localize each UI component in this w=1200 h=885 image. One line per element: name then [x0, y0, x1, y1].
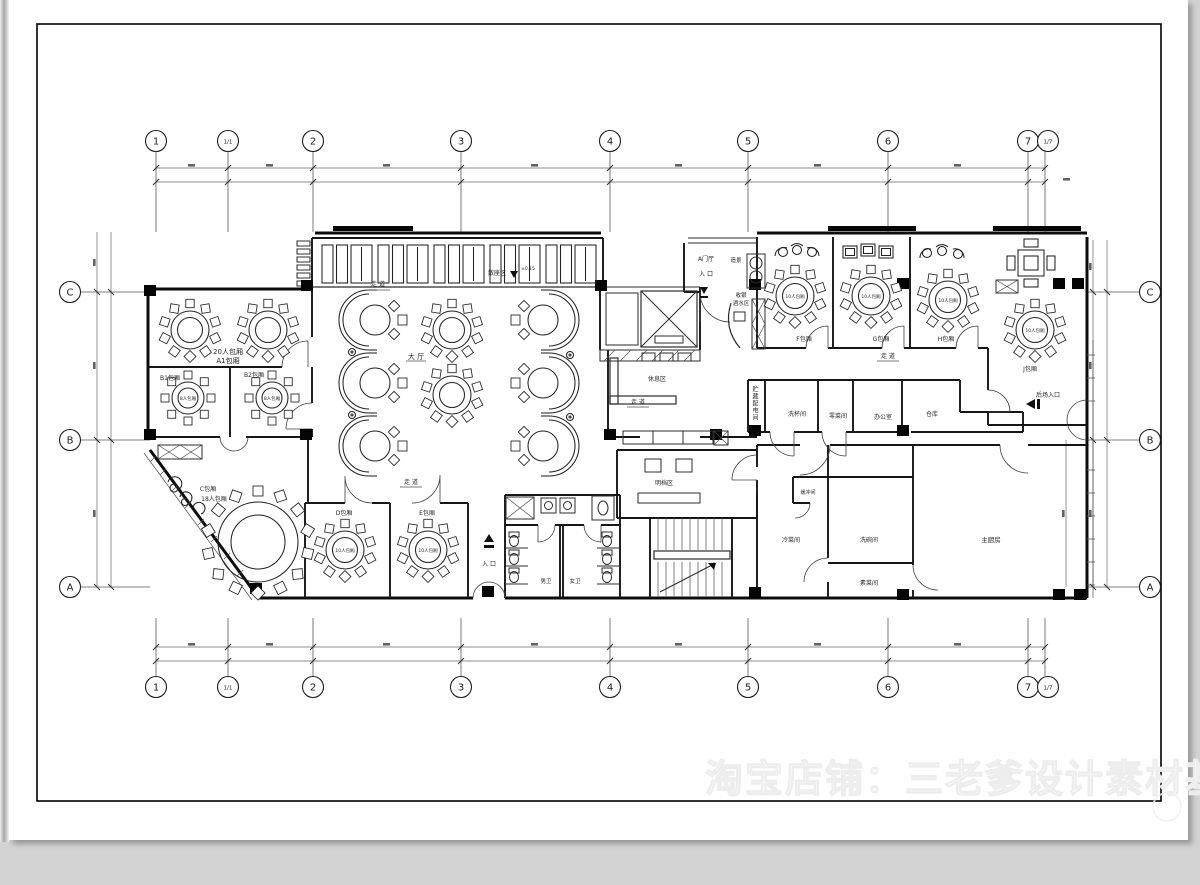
- axis-bubble-3-bottom: 3: [451, 677, 472, 698]
- svg-text:5: 5: [745, 683, 751, 694]
- rear-entry-bar-icon: [1037, 399, 1040, 409]
- axis-bubble-7-bottom: 7: [1018, 677, 1039, 698]
- office-label: 办公室: [874, 413, 892, 421]
- level-marker-icon: [510, 271, 518, 278]
- room-f-label: F包厢: [796, 335, 811, 343]
- tables: [159, 245, 1066, 600]
- svg-text:A: A: [67, 583, 74, 594]
- seating-area-label: 散座区: [488, 269, 506, 277]
- level-value: ±0.15: [521, 266, 535, 272]
- table-h-caption: 10人包厢: [938, 297, 958, 304]
- female-wc-label: 女卫: [569, 577, 581, 585]
- room-h-label: H包厢: [938, 335, 955, 343]
- axis-bubble-5-bottom: 5: [738, 677, 759, 698]
- axis-bubble-7-top: 7: [1018, 131, 1039, 152]
- hall-label: 大 厅: [408, 352, 424, 361]
- svg-text:B: B: [67, 436, 74, 447]
- room-b2-label: B2包厢: [244, 371, 264, 379]
- axis-bubble-1-7-bottom: 1/7: [1038, 677, 1059, 698]
- axis-bubble-6-bottom: 6: [878, 677, 899, 698]
- axis-bubble-4-top: 4: [600, 131, 621, 152]
- warehouse-label: 仓库: [926, 410, 938, 418]
- curved-booth-6: [511, 416, 579, 476]
- storage-power-room-label: 贮藏配电间: [751, 386, 757, 421]
- svg-text:3: 3: [458, 683, 464, 694]
- table-j-caption: 10人包厢: [1025, 327, 1045, 334]
- curved-booth-4: [511, 290, 579, 350]
- svg-text:B: B: [1147, 436, 1154, 447]
- side-entry-bar-icon: [484, 545, 494, 548]
- staircase: [654, 518, 730, 596]
- foyer-label: A门厅: [698, 255, 714, 263]
- room-g-sofas: [843, 244, 893, 258]
- svg-text:2: 2: [310, 683, 316, 694]
- table-g-caption: 10人包厢: [861, 293, 881, 300]
- svg-text:4: 4: [607, 137, 613, 148]
- booth-unit-5: [546, 245, 596, 283]
- svg-text:4: 4: [607, 683, 613, 694]
- curved-booth-5: [511, 353, 579, 413]
- corridor-label-north: 走 道: [371, 280, 385, 288]
- table-a1-right: [237, 299, 299, 362]
- room-g-label: G包厢: [873, 335, 890, 343]
- axis-bubble-1-1-top: 1/1: [218, 131, 239, 152]
- room-c-label: C包厢: [200, 485, 216, 493]
- table-c-18-seat: [201, 486, 314, 600]
- floor-marker-icons: [349, 349, 574, 421]
- svg-text:C: C: [67, 288, 74, 299]
- axis-bubble-1-top: 1: [146, 131, 167, 152]
- dish-wash-label: 洗碗间: [860, 536, 878, 544]
- canvas-background: 1 1/1 2 3 4 5 6 7 1/7 1 1/1 2 3 4 5 6 7 …: [0, 0, 1200, 885]
- svg-text:1/1: 1/1: [223, 140, 232, 146]
- table-hall-2: [421, 364, 483, 427]
- axis-bubble-a-left: A: [60, 577, 81, 598]
- lounge-label: 休息区: [648, 375, 666, 383]
- table-a1-left: [159, 299, 221, 362]
- curved-booth-2: [339, 353, 407, 413]
- booth-unit-4: [490, 245, 540, 283]
- svg-text:6: 6: [885, 683, 891, 694]
- table-e-caption: 10人包厢: [418, 547, 438, 554]
- svg-text:1/7: 1/7: [1043, 686, 1052, 692]
- axis-bubble-3-top: 3: [451, 131, 472, 152]
- axis-bubble-c-left: C: [60, 282, 81, 303]
- room-h-sofas: [920, 245, 964, 259]
- elevator: [606, 291, 697, 347]
- booth-unit-2: [378, 245, 428, 283]
- drinks-label: 酒水区: [733, 299, 750, 307]
- open-kitchen-counters: [623, 431, 728, 503]
- svg-text:7: 7: [1025, 683, 1031, 694]
- cup-wash-label: 洗杯间: [788, 410, 806, 418]
- table-b1-caption: 8人包厢: [180, 395, 197, 402]
- svg-text:3: 3: [458, 137, 464, 148]
- rear-entrance-label: 后场入口: [1036, 391, 1060, 399]
- svg-text:A: A: [1147, 583, 1154, 594]
- buffer-label: 缓冲间: [800, 489, 815, 496]
- room-e-label: E包厢: [419, 509, 435, 517]
- foyer-entry-arrow-icon: [700, 287, 708, 294]
- open-kitchen-label: 明档区: [655, 479, 673, 487]
- room-c18-label: 18人包厢: [201, 495, 227, 503]
- cashier-label: 收银: [735, 291, 747, 299]
- svg-text:2: 2: [310, 137, 316, 148]
- room-j-label: J包厢: [1022, 365, 1037, 373]
- axis-bubble-1-7-top: 1/7: [1038, 131, 1059, 152]
- side-entry-arrow-icon: [484, 534, 494, 542]
- veg-room-label: 零菜间: [829, 412, 847, 420]
- corridor-label-center: 走 道: [631, 398, 645, 406]
- booth-unit-1: [322, 245, 372, 283]
- axis-bubble-1-bottom: 1: [146, 677, 167, 698]
- table-hall-1: [421, 299, 483, 362]
- axis-bubble-6-top: 6: [878, 131, 899, 152]
- svg-text:C: C: [1147, 288, 1154, 299]
- svg-text:5: 5: [745, 137, 751, 148]
- room-f-sofas: [775, 244, 819, 257]
- watermark-logo-icon: [1152, 792, 1182, 822]
- svg-text:1: 1: [153, 137, 159, 148]
- table-f-caption: 10人包厢: [785, 293, 805, 300]
- side-entrance-label: 入 口: [482, 561, 496, 568]
- room-j-square-table: [996, 239, 1055, 293]
- table-b2-caption: 8人包厢: [264, 395, 281, 402]
- corridor-label-east: 走 道: [881, 352, 895, 360]
- main-kitchen-label: 主厨房: [981, 535, 1001, 544]
- axis-bubble-b-left: B: [60, 430, 81, 451]
- curved-booth-3: [339, 416, 407, 476]
- rear-entry-arrow-icon: [1026, 399, 1035, 409]
- closet-hatch: [158, 445, 202, 459]
- veg-dish-label: 素菜间: [860, 579, 878, 587]
- curved-booth-1: [339, 290, 407, 350]
- svg-text:7: 7: [1025, 137, 1031, 148]
- axis-bubble-a-right: A: [1140, 577, 1161, 598]
- foyer-entry-bar-icon: [700, 296, 708, 298]
- room-20-label: 20人包厢: [213, 347, 243, 356]
- scenery-label: 造景: [730, 256, 742, 264]
- cold-dish-label: 冷菜间: [782, 536, 800, 544]
- booth-unit-3: [434, 245, 484, 283]
- axis-bubble-4-bottom: 4: [600, 677, 621, 698]
- svg-text:1/1: 1/1: [223, 686, 232, 692]
- room-d-label: D包厢: [336, 509, 353, 517]
- svg-text:1: 1: [153, 683, 159, 694]
- svg-text:6: 6: [885, 137, 891, 148]
- room-b1-label: B1包厢: [160, 374, 180, 382]
- axis-bubble-c-right: C: [1140, 282, 1161, 303]
- axis-bubble-1-1-bottom: 1/1: [218, 677, 239, 698]
- axis-bubble-2-top: 2: [303, 131, 324, 152]
- axis-bubble-5-top: 5: [738, 131, 759, 152]
- room-a1-label: A1包厢: [216, 356, 239, 365]
- table-d-caption: 10人包厢: [335, 547, 355, 554]
- foyer-entrance-label: 入 口: [699, 271, 713, 278]
- axis-bubble-b-right: B: [1140, 430, 1161, 451]
- axis-bubble-2-bottom: 2: [303, 677, 324, 698]
- watermark-text: 淘宝店铺：三老爹设计素材基地: [705, 748, 1175, 800]
- svg-text:1/7: 1/7: [1043, 140, 1052, 146]
- male-wc-label: 男卫: [540, 578, 552, 585]
- corridor-label-south: 走 道: [404, 478, 418, 486]
